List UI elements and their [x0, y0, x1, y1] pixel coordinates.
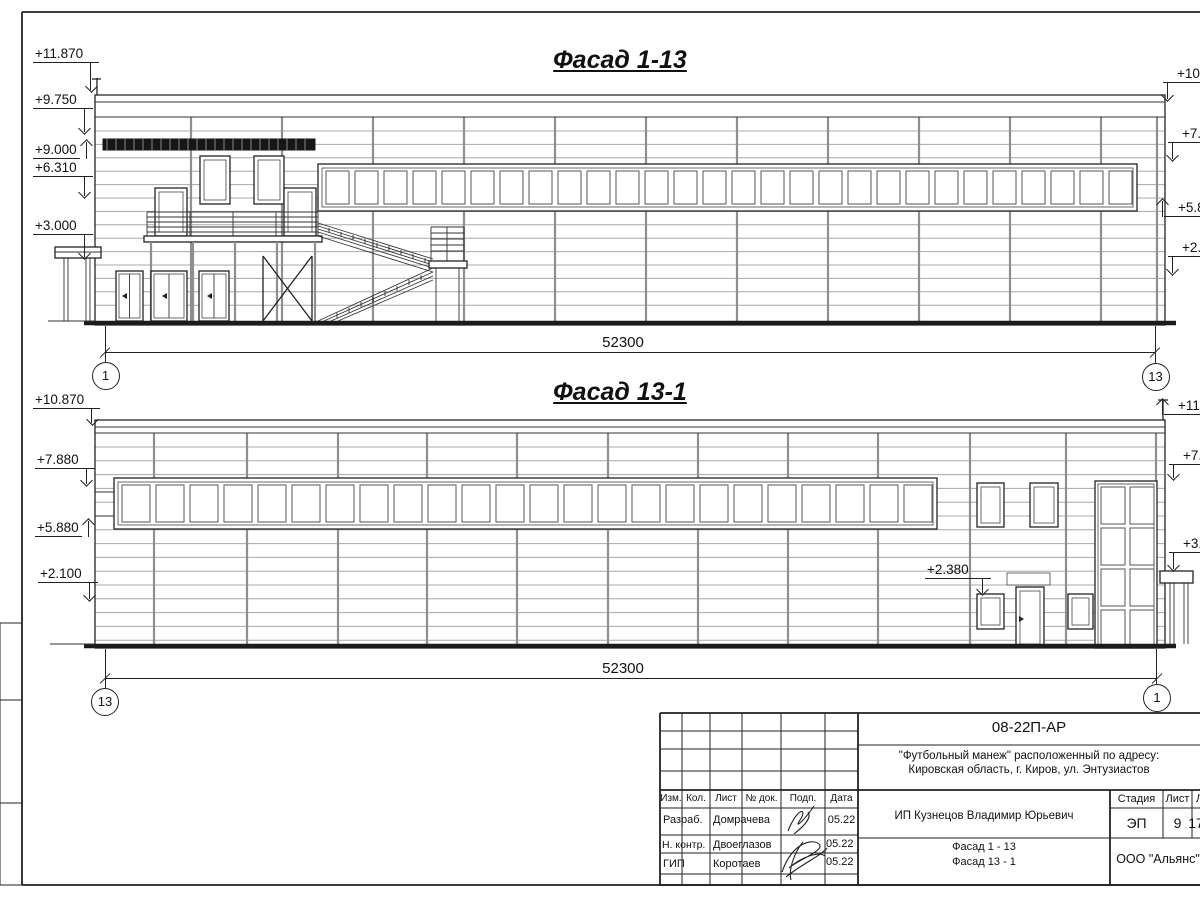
facade1-drawing: [48, 78, 1176, 325]
elevation-value: +5.880: [35, 520, 82, 537]
elevation-mark: +11.8: [1164, 398, 1200, 415]
elevation-arrow-icon: [1173, 553, 1174, 569]
dimension-value: 52300: [523, 660, 723, 677]
elevation-value: +6.310: [33, 160, 93, 177]
facade1-title: Фасад 1-13: [420, 46, 820, 75]
dimension-line: [105, 678, 1157, 679]
elevation-mark: +3.000: [33, 218, 93, 235]
elevation-value: +2.1: [1168, 240, 1200, 257]
elevation-arrow-icon: [1172, 257, 1173, 273]
elevation-value: +9.000: [33, 142, 80, 159]
elevation-value: +7.8: [1168, 126, 1200, 143]
elevation-mark: +2.100: [38, 566, 98, 583]
elevation-value: +2.100: [38, 566, 98, 583]
date-value: 05.22: [826, 838, 854, 850]
x-brace: [263, 256, 312, 321]
facade1-upper-windows: [155, 156, 316, 236]
elevation-mark: +2.1: [1168, 240, 1200, 257]
elevation-arrow-icon: [90, 63, 91, 90]
stage-value: ЭП: [1110, 815, 1163, 831]
elevation-mark: +9.000: [33, 142, 80, 159]
elevation-mark: +3.0: [1169, 536, 1200, 553]
extension-line: [105, 649, 106, 688]
facade1-window-ribbon: [318, 164, 1137, 211]
elevation-mark: +10.870: [33, 392, 100, 409]
dimension-value: 52300: [523, 334, 723, 351]
elevation-arrow-icon: [86, 469, 87, 484]
elevation-arrow-icon: [89, 583, 90, 599]
elevation-mark: +6.310: [33, 160, 93, 177]
elevation-value: +9.750: [33, 92, 93, 109]
person-name: Двоеглазов: [713, 839, 771, 851]
extension-line: [105, 326, 106, 362]
facade2-title: Фасад 13-1: [420, 378, 820, 407]
dark-band: [103, 139, 315, 150]
elevation-value: +7.880: [35, 452, 95, 469]
elevation-arrow-icon: [1172, 143, 1173, 159]
elevation-value: +3.000: [33, 218, 93, 235]
col-header-doc: № док.: [742, 793, 781, 804]
col-header-podp: Подп.: [781, 793, 825, 804]
axis-bubble: 13: [91, 688, 119, 716]
elevation-arrow-icon: [1173, 465, 1174, 478]
drawing-name-2: Фасад 13 - 1: [858, 856, 1110, 868]
elevation-mark: +5.8: [1164, 200, 1200, 217]
col-header-izm: Изм.: [660, 793, 682, 804]
date-value: 05.22: [826, 814, 857, 826]
elevation-arrow-icon: [1167, 83, 1168, 99]
role-label: Н. контр.: [662, 839, 705, 851]
signature-1: [788, 806, 814, 834]
col-header-list: Лист: [710, 793, 742, 804]
entrance-canopy: [1007, 573, 1050, 585]
dimension-line: [105, 352, 1155, 353]
axis-bubble: 13: [1142, 363, 1170, 391]
elevation-arrow-icon: [84, 177, 85, 196]
elevation-mark: +2.380: [925, 562, 991, 579]
extension-line: [1155, 326, 1156, 363]
role-label: ГИП: [663, 858, 685, 870]
facade1-left-canopy: [55, 247, 101, 321]
elevation-mark: +7.8: [1169, 448, 1200, 465]
col-header-kol: Кол.: [682, 793, 710, 804]
elevation-value: +11.8: [1164, 398, 1200, 415]
person-name: Домрачева: [713, 814, 770, 826]
elevation-arrow-icon: [88, 521, 89, 537]
elevation-value: +5.8: [1164, 200, 1200, 217]
elevation-arrow-icon: [84, 109, 85, 132]
elevation-mark: +11.870: [33, 46, 99, 63]
sheets-label: Листов: [1196, 793, 1200, 805]
stage-label: Стадия: [1110, 793, 1163, 805]
sheets-total: 17: [1182, 815, 1200, 831]
elevation-mark: +10.8: [1163, 66, 1200, 83]
customer-name: ИП Кузнецов Владимир Юрьевич: [858, 810, 1110, 822]
elevation-arrow-icon: [1162, 201, 1163, 217]
elevation-arrow-icon: [86, 142, 87, 159]
col-header-data: Дата: [825, 793, 858, 804]
elevation-value: +2.380: [925, 562, 991, 579]
person-name: Коротаев: [713, 858, 761, 870]
axis-bubble: 1: [92, 362, 120, 390]
elevation-mark: +7.880: [35, 452, 95, 469]
drawing-name-1: Фасад 1 - 13: [858, 841, 1110, 853]
elevation-value: +10.8: [1163, 66, 1200, 83]
date-value: 05.22: [826, 856, 854, 868]
elevation-value: +10.870: [33, 392, 100, 409]
axis-bubble: 1: [1143, 684, 1171, 712]
facade1-columns: [191, 117, 1157, 321]
facade2-window-ribbon: [95, 478, 937, 529]
sheet-label: Лист: [1163, 793, 1192, 805]
project-address-line1: "Футбольный манеж" расположенный по адре…: [858, 750, 1200, 762]
elevation-arrow-icon: [1162, 401, 1163, 415]
elevation-mark: +9.750: [33, 92, 93, 109]
elevation-value: +11.870: [33, 46, 99, 63]
organization-name: ООО "Альянс": [1110, 852, 1200, 866]
elevation-value: +3.0: [1169, 536, 1200, 553]
elevation-mark: +5.880: [35, 520, 82, 537]
project-address-line2: Кировская область, г. Киров, ул. Энтузиа…: [858, 764, 1200, 776]
facade2-drawing: [50, 400, 1193, 648]
elevation-arrow-icon: [982, 579, 983, 593]
role-label: Разраб.: [663, 814, 703, 826]
elevation-mark: +7.8: [1168, 126, 1200, 143]
doc-number: 08-22П-АР: [858, 719, 1200, 736]
elevation-arrow-icon: [91, 409, 92, 423]
elevation-arrow-icon: [84, 235, 85, 257]
elevation-value: +7.8: [1169, 448, 1200, 465]
drawing-sheet: Фасад 1-13 Фасад 13-1 +11.870 +9.750 +9.…: [0, 0, 1200, 900]
